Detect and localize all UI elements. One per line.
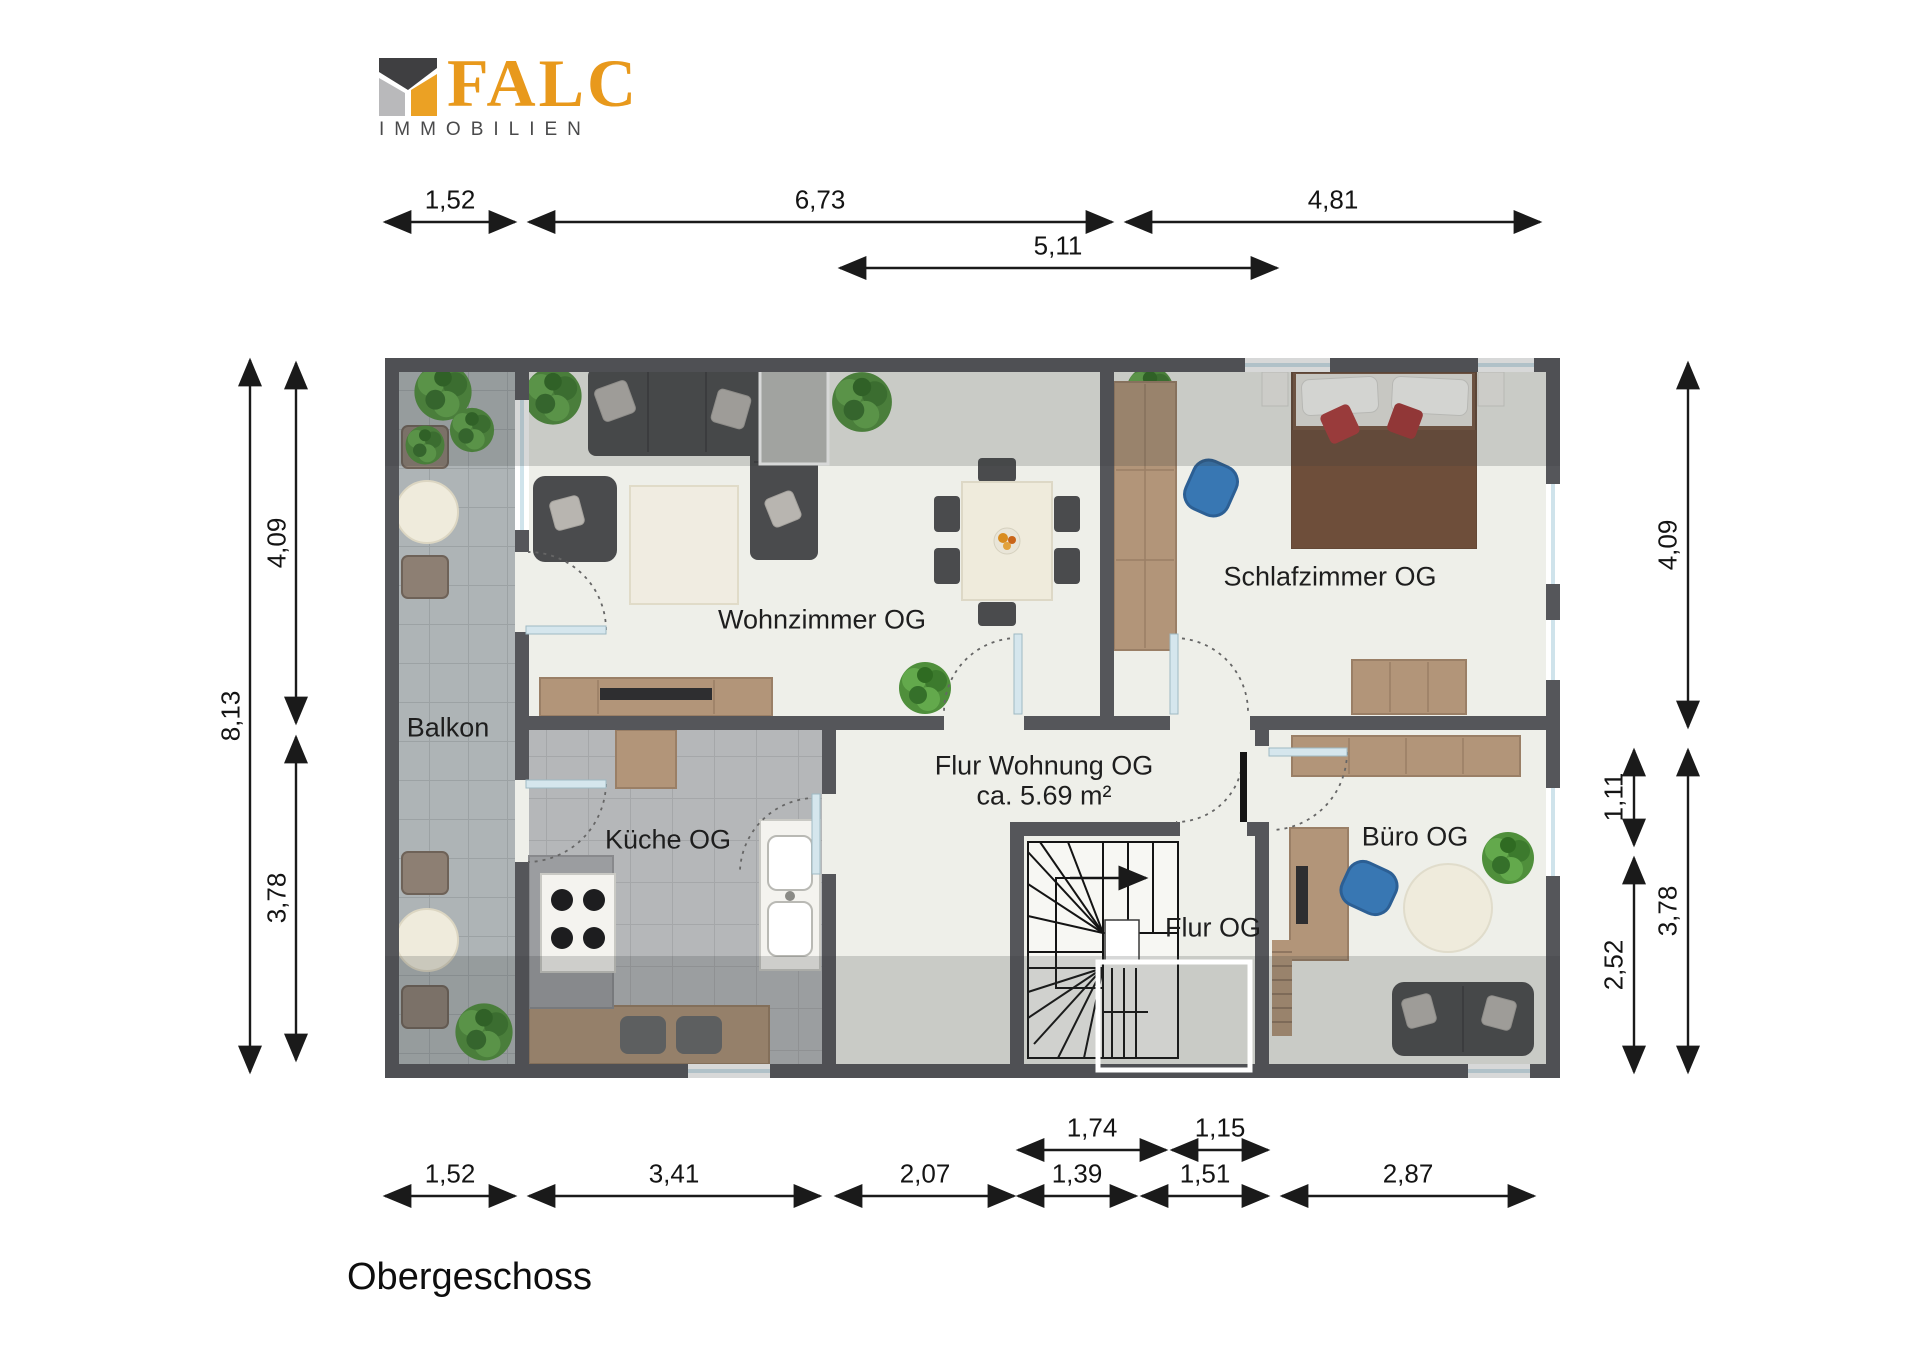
armchair (533, 476, 617, 562)
dim-bottom-inner-1: 1,74 (1067, 1113, 1118, 1144)
dim-bottom-4: 1,39 (1052, 1159, 1103, 1190)
room-label-balkon: Balkon (407, 713, 490, 744)
room-label-flur: Flur OG (1165, 913, 1261, 944)
page-title: Obergeschoss (347, 1256, 592, 1299)
dresser (1352, 660, 1466, 714)
dim-bottom-inner-2: 1,15 (1195, 1113, 1246, 1144)
room-label-schlafzimmer: Schlafzimmer OG (1223, 562, 1436, 593)
dim-top-1: 1,52 (425, 185, 476, 216)
dim-top-3: 4,81 (1308, 185, 1359, 216)
dim-right-lower: 3,78 (1653, 886, 1684, 937)
sink (760, 820, 820, 970)
round-rug (1404, 864, 1492, 952)
room-label-flur-wohnung-area: ca. 5.69 m² (976, 781, 1111, 812)
dim-right-upper: 4,09 (1653, 520, 1684, 571)
entry-door-leaf (1240, 752, 1247, 822)
dim-left-total: 8,13 (216, 691, 247, 742)
dim-bottom-6: 2,87 (1383, 1159, 1434, 1190)
room-label-flur-wohnung: Flur Wohnung OG (935, 751, 1154, 782)
falc-logo-icon (377, 56, 439, 118)
dim-right-inner-lower: 2,52 (1599, 940, 1630, 991)
room-label-buero: Büro OG (1362, 822, 1469, 853)
dim-right-inner-upper: 1,11 (1599, 773, 1630, 822)
floorplan-graphic (0, 0, 1920, 1357)
dim-top-inner-1: 5,11 (1034, 231, 1083, 262)
sideboard (540, 678, 772, 716)
floorplan-page: FALC IMMOBILIEN Balkon Wohnzimmer OG Sch… (0, 0, 1920, 1357)
logo-brand-text: FALC (447, 44, 639, 123)
dim-bottom-3: 2,07 (900, 1159, 951, 1190)
dim-bottom-2: 3,41 (649, 1159, 700, 1190)
dim-top-2: 6,73 (795, 185, 846, 216)
logo-subtitle-text: IMMOBILIEN (379, 119, 591, 141)
room-label-kueche: Küche OG (605, 825, 731, 856)
dim-bottom-5: 1,51 (1180, 1159, 1231, 1190)
dim-left-upper: 4,09 (262, 518, 293, 569)
dim-bottom-1: 1,52 (425, 1159, 476, 1190)
dim-left-lower: 3,78 (262, 873, 293, 924)
room-label-wohnzimmer: Wohnzimmer OG (718, 605, 926, 636)
kitchen-table (616, 730, 676, 788)
